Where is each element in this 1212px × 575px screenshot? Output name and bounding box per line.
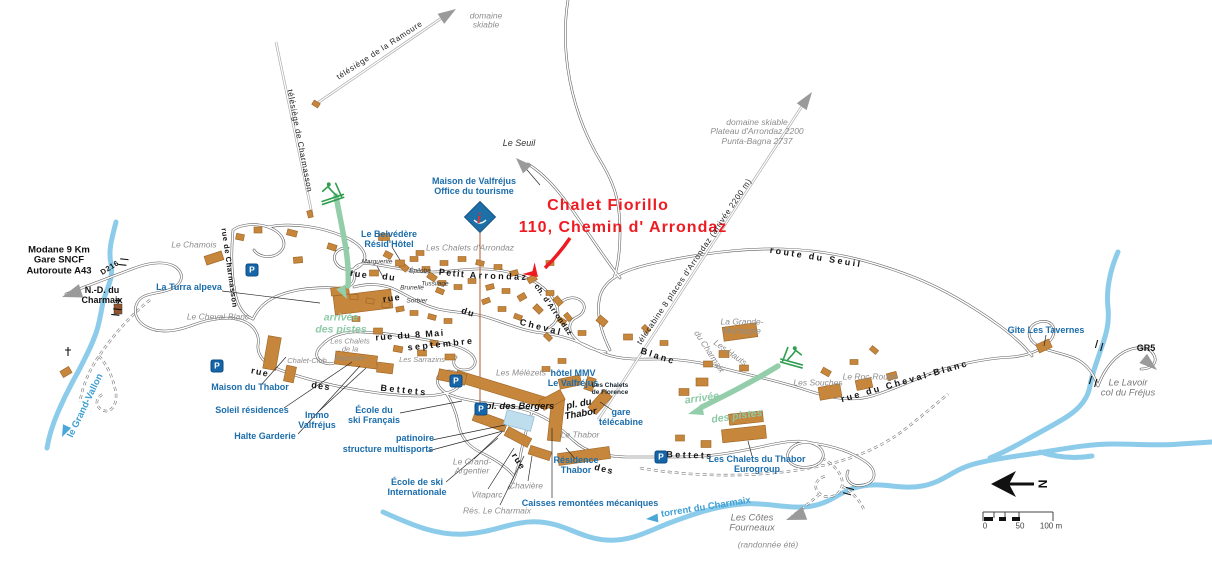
label-arrivee-right-1: arrivée (684, 391, 720, 407)
road-label-bettets-1: Bettets (380, 384, 428, 399)
road-label-des-1: des (311, 381, 332, 394)
label-le-lavoir: Le Lavoir col du Fréjus (1101, 379, 1155, 400)
label-nd-charmaix: N.-D. du Charmaix (81, 286, 122, 306)
label-gare-telecabine: gare télécabine (599, 408, 643, 428)
label-cheval-blanc-res: Le Cheval-Blanc (187, 312, 249, 321)
label-immo-valfrejus: Immo Valfréjus (298, 411, 336, 431)
label-ecole-ski-internationale: École de ski Internationale (387, 478, 446, 498)
parking-icon: P (475, 403, 488, 416)
scale-tick-0: 0 (983, 523, 987, 532)
label-caisses-remontees: Caisses remontées mécaniques (522, 499, 659, 509)
road-label-rue-cheval-blanc: rue du Cheval-Blanc (840, 359, 970, 405)
label-chalets-florence: Les Chalets de Florence (592, 382, 629, 396)
label-du-charmaix: du Charmaix (692, 329, 726, 375)
label-torrent-charmaix: torrent du Charmaix (660, 496, 751, 521)
label-pl-des-bergers: pl. des Bergers (486, 402, 555, 412)
label-telesiege-charmasson: télésiège de Charmasson (285, 89, 314, 193)
label-chalets-ramoure: Les Chalets de la Ramoure (330, 338, 370, 363)
label-gite-les-tavernes: Gîte Les Tavernes (1008, 326, 1085, 336)
label-modane: Modane 9 Km Gare SNCF Autoroute A43 (26, 245, 91, 276)
label-les-hauts: Les Hauts (712, 338, 749, 368)
label-randonnee-ete: (randonnée été) (738, 540, 799, 549)
road-label-rue-4: rue (509, 452, 527, 473)
parking-icon: P (211, 360, 224, 373)
road-label-du-1: du (381, 272, 396, 284)
label-gr5: GR5 (1137, 344, 1156, 354)
label-epilobe: Épilobe (409, 267, 431, 274)
label-residence-thabor: Résidence Thabor (553, 456, 598, 476)
label-grand-vallon: le Grand-Vallon (66, 372, 106, 439)
label-sarrazins: Les Sarrazins (399, 356, 445, 364)
valfrejus-resort-map: i domaine skiabletélésiège de la Ramoure… (0, 0, 1212, 575)
label-ecole-ski-francais: École du ski Français (348, 406, 400, 426)
label-d216: D216 (99, 259, 121, 277)
road-label-septembre: septembre (407, 337, 475, 354)
label-domaine-skiable-right: domaine skiable Plateau d'Arrondaz 2200 … (710, 118, 803, 146)
label-arrivee-pistes-left: arrivée des pistes (315, 312, 366, 335)
road-label-bettets-2: Bettets (666, 450, 714, 462)
label-telecabine-arrondaz: télécabine 8 places d'Arrondaz (arrivée … (636, 177, 754, 346)
label-telesiege-ramoure: télésiège de la Ramoure (335, 20, 424, 82)
label-les-souches: Les Souches (793, 378, 842, 387)
label-vitaparc: Vitaparc (471, 490, 502, 499)
label-la-turra: La Turra alpeva (156, 283, 222, 293)
road-label-rue-3: rue (250, 366, 270, 379)
label-le-seuil: Le Seuil (503, 139, 536, 149)
road-label-blanc: Blanc (639, 347, 677, 368)
label-halte-garderie: Halte Garderie (234, 432, 296, 442)
label-marguerite: Marguerite (361, 258, 392, 265)
label-tussilage: Tussilage (421, 280, 448, 287)
parking-icon: P (450, 375, 463, 388)
scale-tick-50: 50 (1016, 523, 1025, 532)
label-hotel-mmv: hôtel MMV Le Valfréjus (548, 369, 599, 389)
road-label-ch-arrondaz: ch. d'Arrondaz (532, 283, 574, 337)
label-maison-thabor: Maison du Thabor (211, 383, 289, 393)
label-roc-rouge: Le Roc-Rouge (843, 372, 898, 381)
label-chalets-du-thabor: Les Chalets du Thabor Eurogroup (708, 455, 805, 475)
road-label-rue-8-mai: rue du 8 Mai (375, 329, 445, 344)
label-le-chamois: Le Chamois (171, 240, 216, 249)
label-grand-argentier: Le Grand- Argentier (453, 458, 491, 477)
label-chemin-arrondaz-red: 110, Chemin d' Arrondaz (519, 219, 727, 237)
road-label-rue-2: rue (382, 293, 401, 305)
label-chalet-club: Chalet-Club (287, 357, 327, 365)
label-belvedere: Le Belvédère Résid'Hôtel (361, 230, 417, 250)
parking-icon: P (655, 451, 668, 464)
label-melezets: Les Mélèzets (496, 368, 546, 377)
label-domaine-skiable-top: domaine skiable (470, 12, 503, 31)
label-chalet-fiorillo: Chalet Fiorillo (547, 197, 669, 215)
road-label-du-2: du (460, 306, 476, 320)
scale-tick-100: 100 m (1040, 523, 1062, 532)
label-cotes-fourneaux: Les Côtes Fourneaux (729, 514, 774, 535)
label-maison-valfrejus: Maison de Valfréjus Office du tourisme (432, 177, 516, 197)
label-chaviere: Chavière (509, 481, 543, 490)
road-label-rue-de-charmasson: rue de Charmasson (219, 228, 238, 309)
label-sorbier: Sorbier (407, 297, 428, 304)
compass-north-letter: N (1035, 480, 1048, 489)
map-labels-layer: domaine skiabletélésiège de la Ramoureté… (0, 0, 1212, 575)
label-soleil-residences: Soleil résidences (215, 406, 289, 416)
road-label-des-2: des (593, 463, 615, 477)
road-label-cheval: Cheval (518, 318, 563, 338)
parking-icon: P (246, 264, 259, 277)
label-structure-multisports: structure multisports (343, 445, 434, 455)
label-le-thabor: Le Thabor (561, 430, 600, 439)
label-grande-montagne: La Grande- Montagne (721, 318, 764, 337)
road-label-route-du-seuil: route du Seuil (769, 246, 863, 270)
road-label-petit: Petit (438, 268, 465, 281)
label-brunelle: Brunelle (400, 284, 424, 291)
label-arrivee-right-2: des pistes (711, 408, 763, 427)
road-label-arrondaz: Arrondaz (469, 271, 528, 283)
road-label-rue-1: rue (349, 269, 368, 281)
label-patinoire: patinoire (396, 434, 434, 444)
label-pl-du-thabor: pl. du Thabor (562, 397, 597, 423)
label-res-le-charmaix: Rés. Le Charmaix (463, 506, 531, 515)
label-chalets-arrondaz: Les Chalets d'Arrondaz (426, 243, 514, 252)
